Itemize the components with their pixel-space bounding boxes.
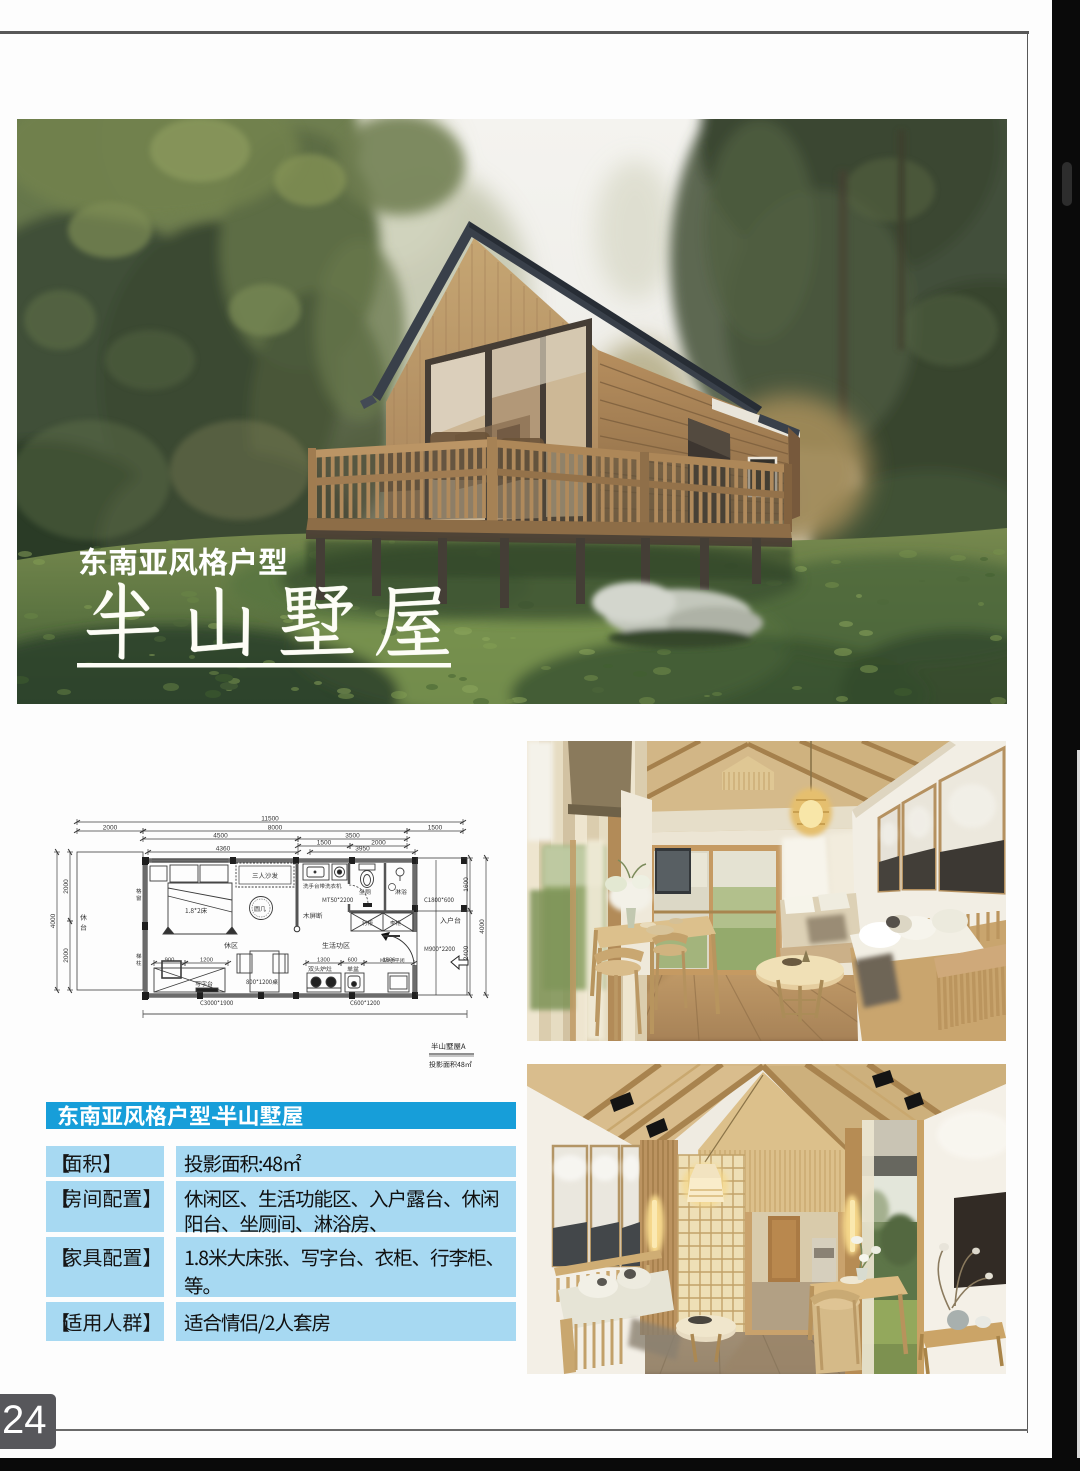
svg-text:1500: 1500 <box>317 840 332 847</box>
svg-text:1300: 1300 <box>317 958 330 964</box>
svg-text:1500: 1500 <box>428 825 443 832</box>
svg-text:8000: 8000 <box>268 825 283 832</box>
svg-text:2000: 2000 <box>63 948 70 963</box>
svg-text:11500: 11500 <box>261 816 279 823</box>
svg-text:4500: 4500 <box>213 833 228 840</box>
svg-text:2000: 2000 <box>371 840 386 847</box>
svg-text:2400: 2400 <box>463 945 470 960</box>
svg-text:4000: 4000 <box>479 919 486 934</box>
svg-text:3500: 3500 <box>345 833 360 840</box>
svg-text:2000: 2000 <box>63 879 70 894</box>
svg-text:2000: 2000 <box>103 825 118 832</box>
svg-text:1200: 1200 <box>200 958 213 964</box>
svg-text:4000: 4000 <box>50 913 57 928</box>
svg-text:3950: 3950 <box>355 846 370 853</box>
svg-text:1600: 1600 <box>463 877 470 892</box>
svg-text:600: 600 <box>348 958 358 964</box>
svg-text:4360: 4360 <box>216 846 231 853</box>
